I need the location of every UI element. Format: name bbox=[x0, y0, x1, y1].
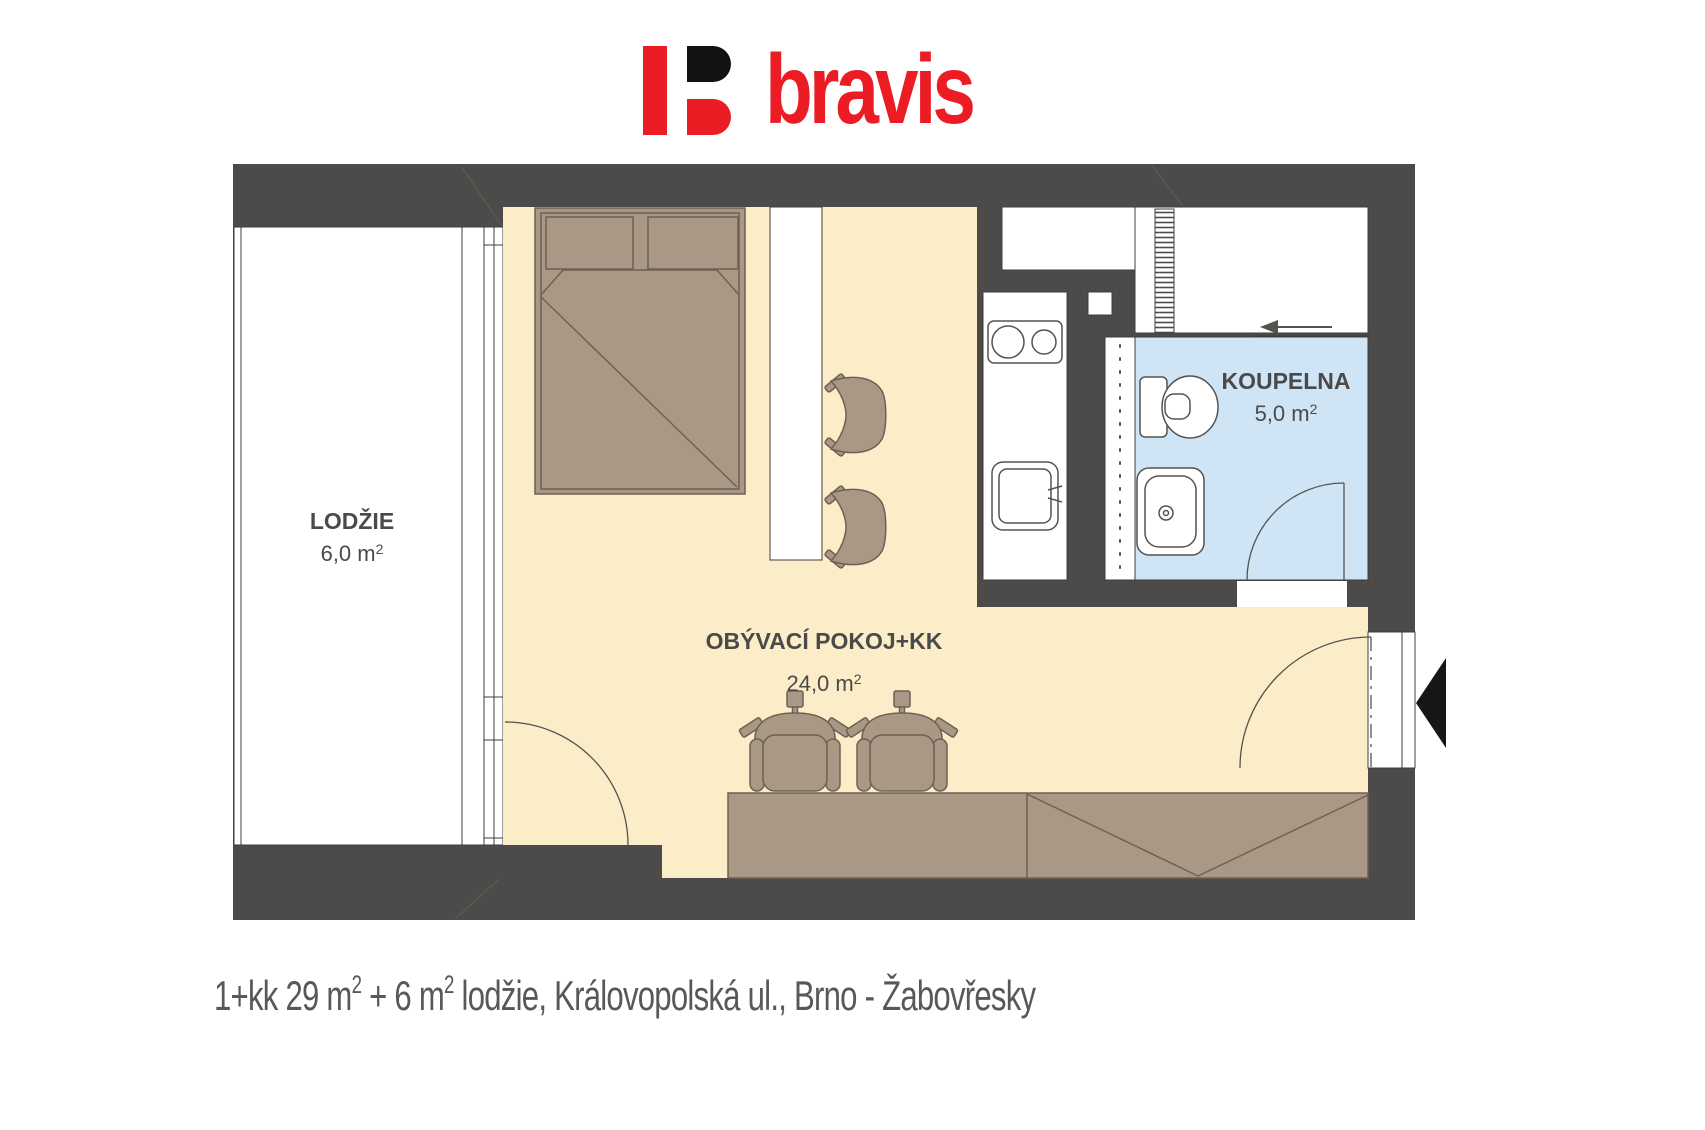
caption-part: lodžie, Královopolská ul., Brno - Žabovř… bbox=[454, 972, 1036, 1019]
sofa-table bbox=[728, 793, 1368, 878]
cooktop bbox=[988, 321, 1062, 363]
caption-part: + 6 m bbox=[361, 972, 444, 1019]
loggia-area: 6,0 m2 bbox=[321, 541, 384, 566]
wall-notch bbox=[1088, 292, 1112, 315]
caption-part: 1+kk 29 m bbox=[214, 972, 352, 1019]
floor-plan: LODŽIE 6,0 m2 OBÝVACÍ POKOJ+KK 24,0 m2 K… bbox=[0, 0, 1705, 1130]
bathroom-label: KOUPELNA bbox=[1221, 368, 1350, 394]
pillow bbox=[648, 217, 738, 269]
entrance-door-opening bbox=[1368, 632, 1415, 768]
bathroom-area: 5,0 m2 bbox=[1255, 401, 1318, 426]
bathroom-door-opening bbox=[1237, 581, 1347, 607]
kitchen-sink bbox=[992, 462, 1062, 530]
caption-sup: 2 bbox=[352, 971, 362, 999]
loggia-floor bbox=[234, 227, 462, 845]
ventilation-shaft bbox=[1155, 209, 1174, 333]
washbasin bbox=[1137, 468, 1204, 555]
pillow bbox=[546, 217, 633, 269]
living-room-label: OBÝVACÍ POKOJ+KK bbox=[706, 627, 943, 654]
entrance-marker-triangle bbox=[1416, 658, 1446, 748]
living-room-area: 24,0 m2 bbox=[786, 671, 861, 696]
bed bbox=[535, 208, 745, 494]
listing-caption: 1+kk 29 m2 + 6 m2 lodžie, Královopolská … bbox=[214, 972, 1035, 1020]
toilet bbox=[1140, 376, 1218, 438]
caption-sup: 2 bbox=[444, 971, 454, 999]
island-counter bbox=[770, 207, 822, 560]
hall-niche bbox=[1002, 207, 1135, 270]
loggia-label: LODŽIE bbox=[310, 507, 394, 534]
loggia-window-wall bbox=[462, 227, 503, 845]
